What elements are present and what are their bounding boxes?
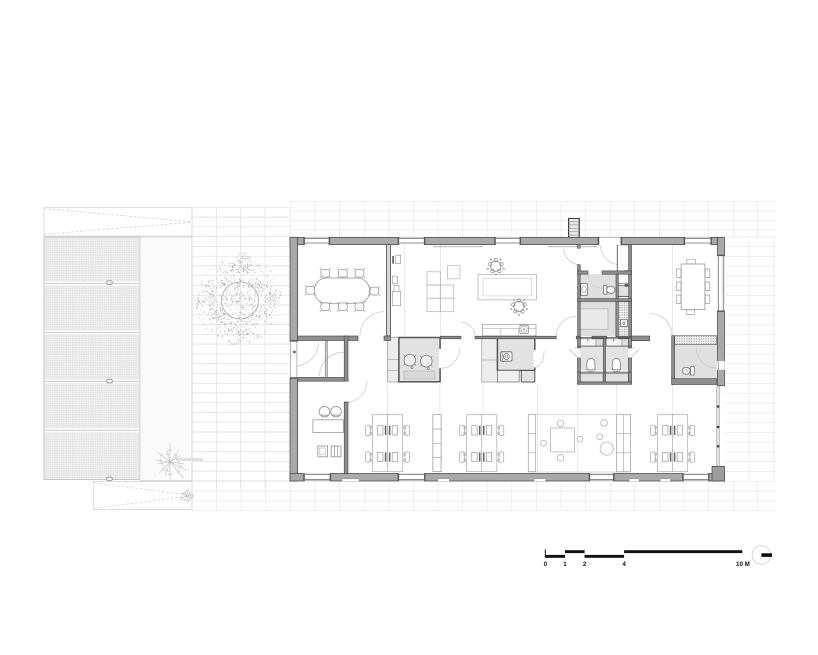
svg-text:2: 2 (583, 561, 587, 568)
svg-text:1: 1 (563, 561, 567, 568)
svg-text:10 M: 10 M (736, 561, 750, 568)
svg-text:4: 4 (622, 561, 626, 568)
svg-text:0: 0 (544, 561, 548, 568)
